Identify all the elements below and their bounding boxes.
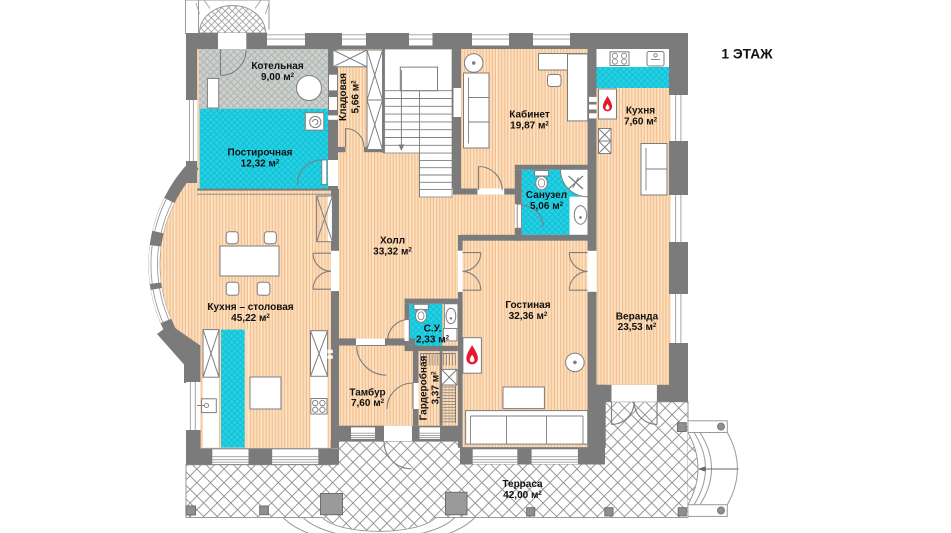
svg-text:19,87 м2: 19,87 м2 [510,120,549,131]
svg-text:23,53 м2: 23,53 м2 [618,322,657,333]
svg-text:С.У.: С.У. [424,324,442,335]
svg-text:5,06 м2: 5,06 м2 [530,201,564,212]
svg-text:32,36 м2: 32,36 м2 [509,311,548,322]
svg-text:3,37 м2: 3,37 м2 [431,371,442,405]
svg-text:2,33 м2: 2,33 м2 [416,334,450,345]
svg-text:Санузел: Санузел [526,190,567,201]
svg-text:7,60 м2: 7,60 м2 [624,116,658,127]
svg-text:7,60 м2: 7,60 м2 [351,398,385,409]
svg-text:5,66 м2: 5,66 м2 [351,80,362,114]
svg-text:9,00 м2: 9,00 м2 [261,72,295,83]
svg-text:Терраса: Терраса [502,479,543,490]
svg-text:Котельная: Котельная [251,61,304,72]
svg-text:Постирочная: Постирочная [228,148,293,159]
svg-text:Кабинет: Кабинет [509,109,550,121]
svg-text:12,32 м2: 12,32 м2 [241,158,280,169]
svg-text:Тамбур: Тамбур [349,386,385,398]
svg-text:1 ЭТАЖ: 1 ЭТАЖ [721,47,773,62]
svg-text:Кухня: Кухня [626,106,655,117]
svg-text:Гостиная: Гостиная [505,300,550,311]
svg-text:Холл: Холл [380,236,405,247]
svg-text:Кухня – столовая: Кухня – столовая [207,302,293,313]
svg-text:Веранда: Веранда [616,311,659,322]
svg-text:Гардеробная: Гардеробная [418,355,430,420]
svg-text:42,00 м2: 42,00 м2 [503,490,542,501]
svg-text:33,32 м2: 33,32 м2 [373,247,412,258]
svg-text:45,22 м2: 45,22 м2 [231,313,270,324]
svg-text:Кладовая: Кладовая [338,73,349,121]
